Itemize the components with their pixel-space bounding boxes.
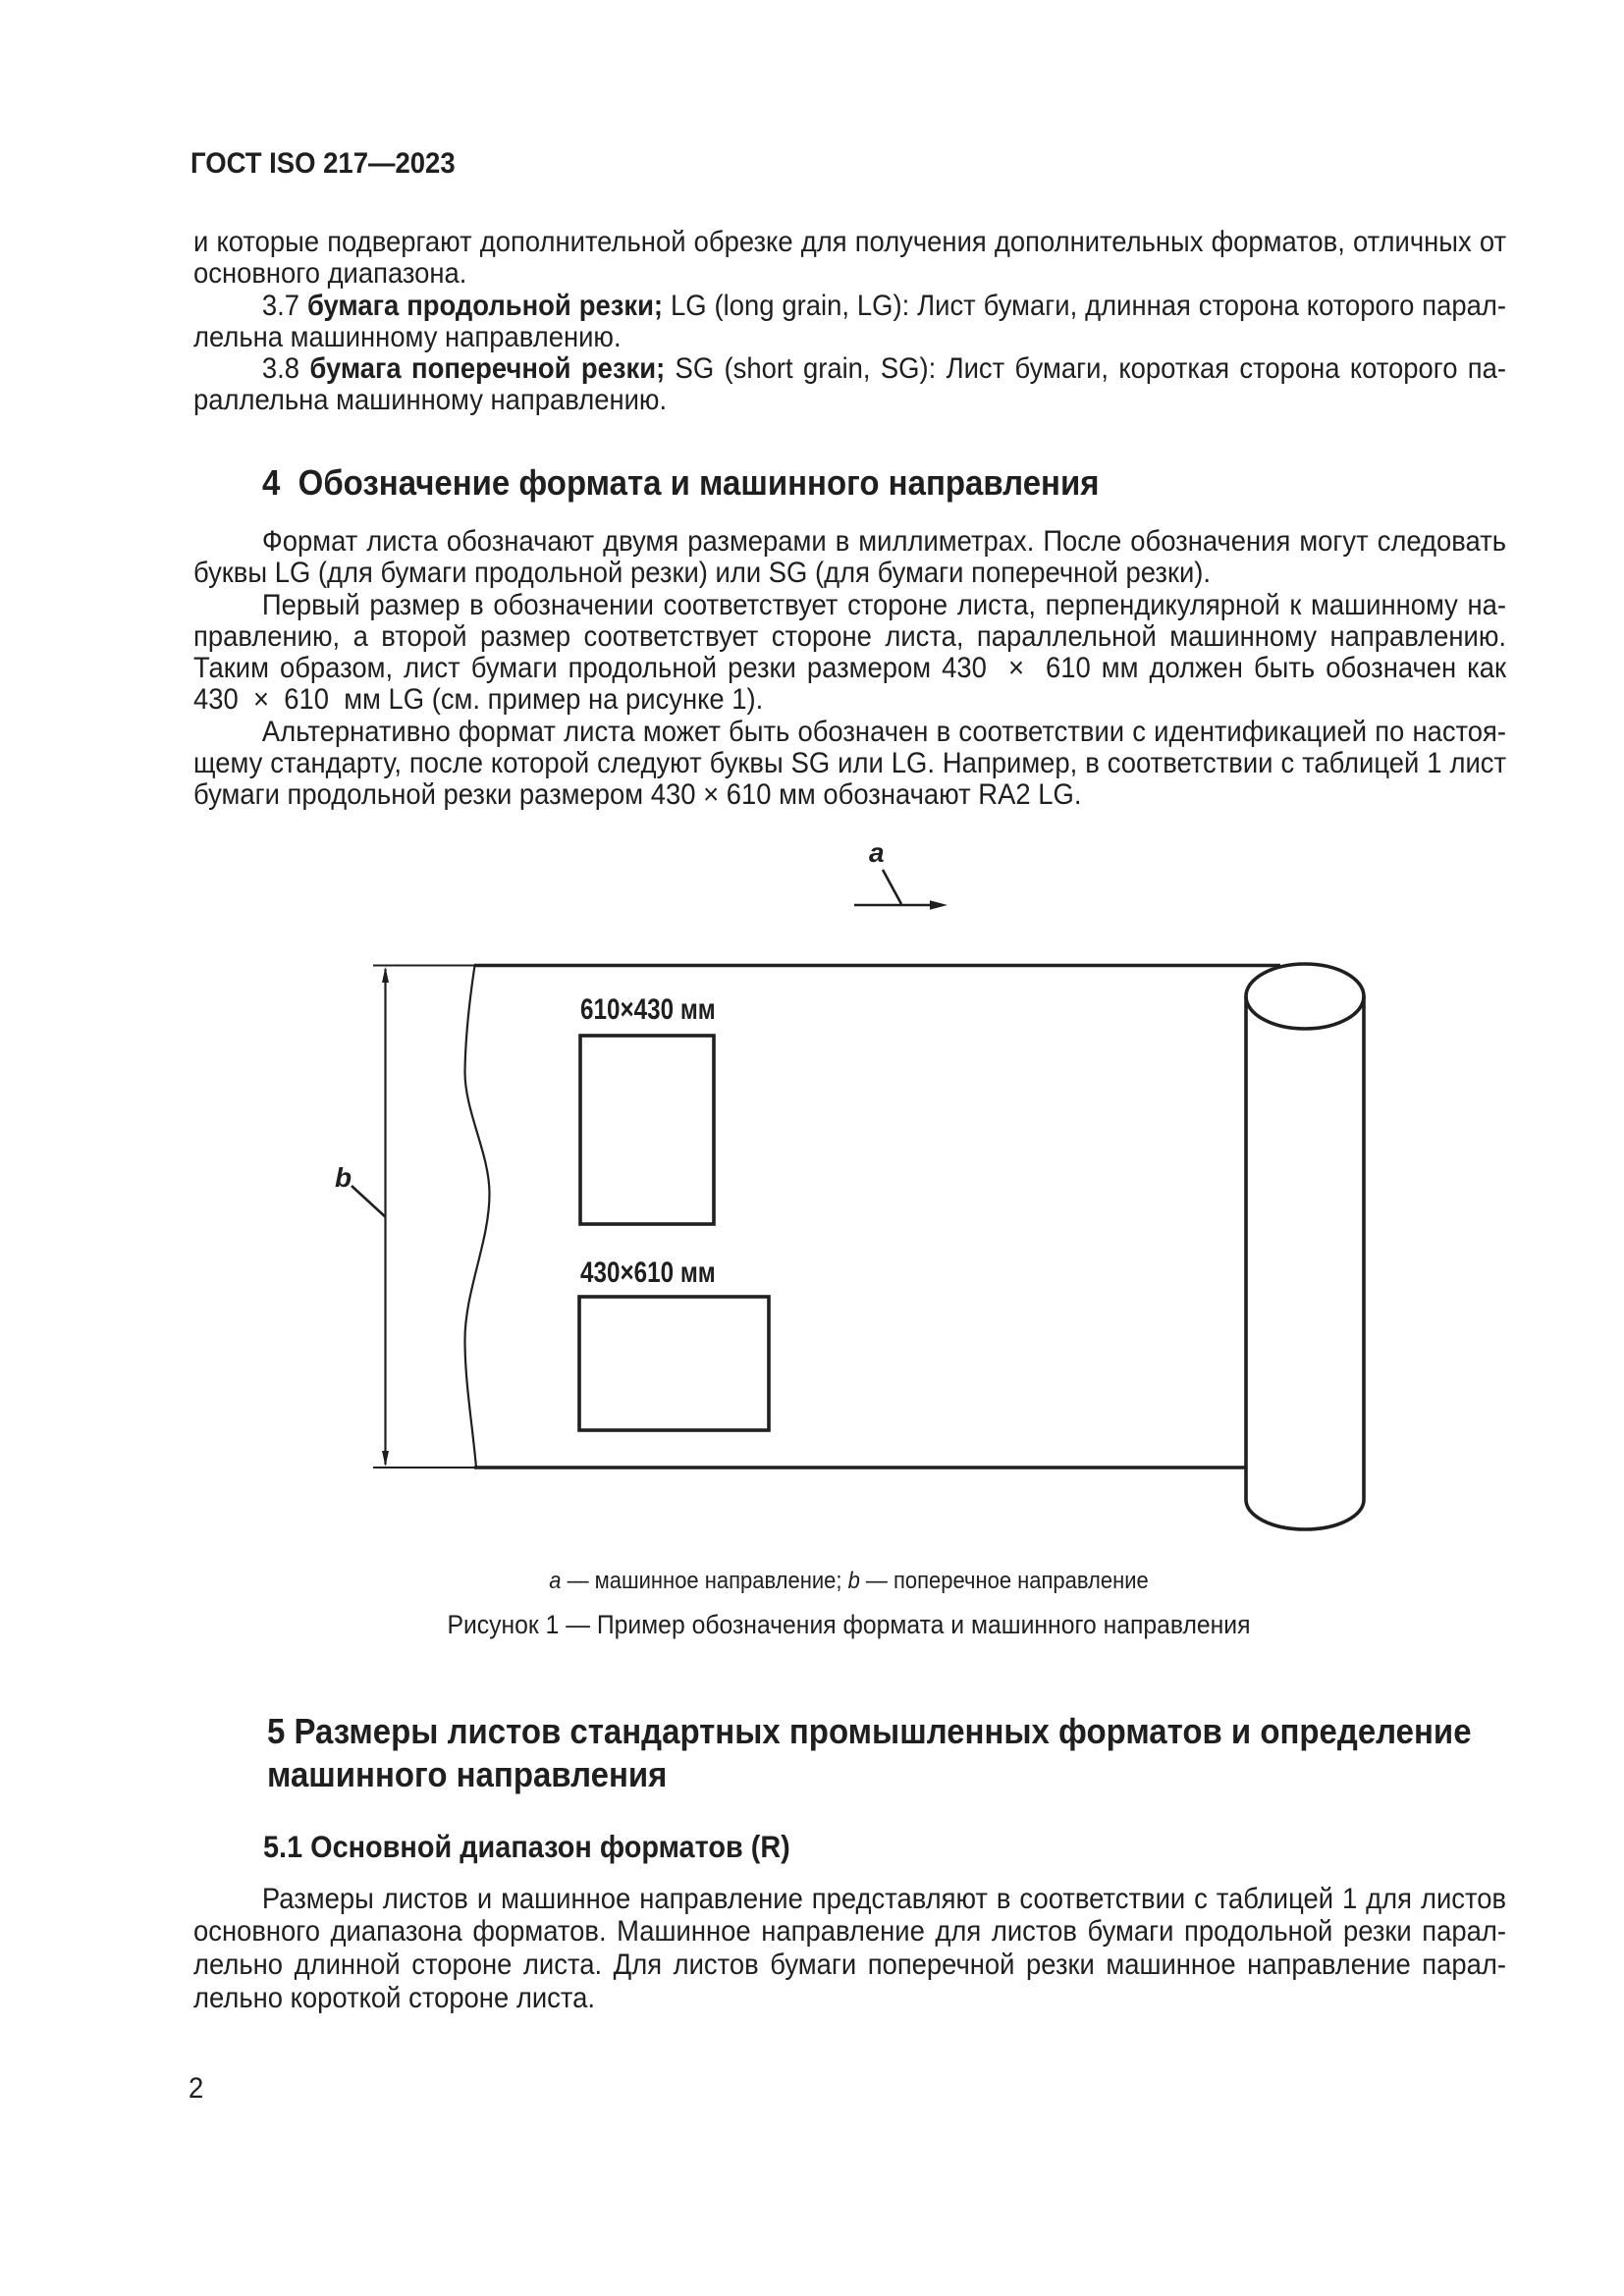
svg-text:a: a	[869, 837, 885, 868]
svg-text:610×430 мм: 610×430 мм	[580, 993, 716, 1026]
svg-text:b: b	[335, 1162, 352, 1193]
svg-text:430×610 мм: 430×610 мм	[580, 1256, 716, 1289]
